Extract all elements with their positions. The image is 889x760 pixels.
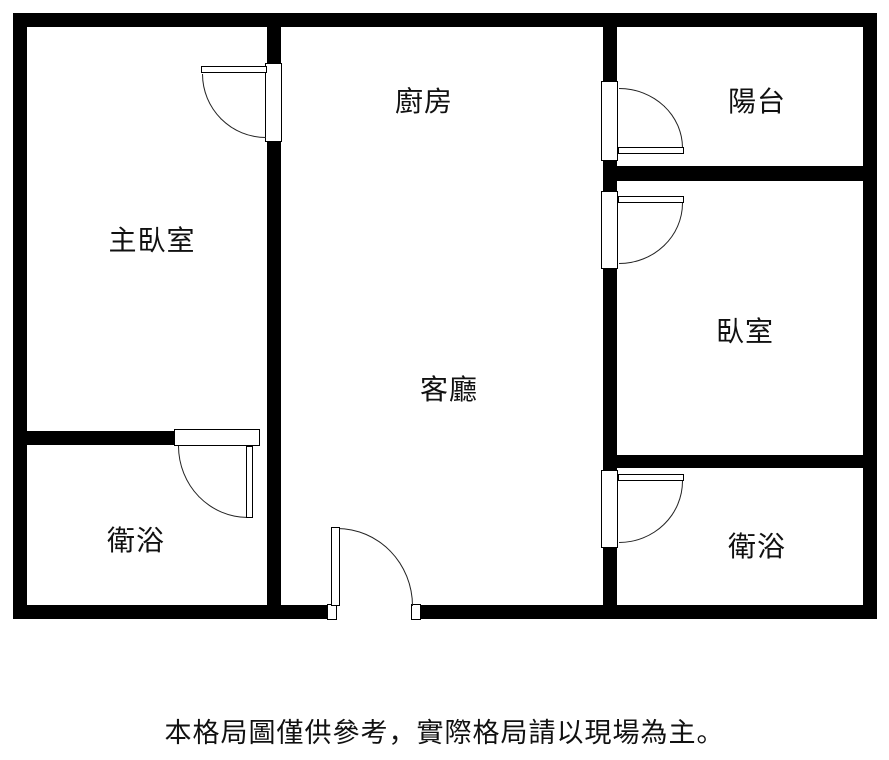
bathroom-right-door-frame <box>601 470 618 548</box>
room-label-bedroom: 臥室 <box>716 310 774 350</box>
room-label-balcony: 陽台 <box>728 80 786 120</box>
room-label-bathroom-right: 衛浴 <box>728 525 786 565</box>
disclaimer-text: 本格局圖僅供參考，實際格局請以現場為主。 <box>0 711 889 750</box>
outer-wall-bottom-right <box>420 605 877 619</box>
outer-wall-bottom-left <box>13 605 328 619</box>
outer-wall-top <box>13 13 877 27</box>
entrance-door-panel <box>331 527 340 606</box>
wall-right-column-seg4 <box>603 546 617 605</box>
room-label-living-room: 客廳 <box>420 368 478 408</box>
bedroom-door-swing-arc <box>619 203 683 264</box>
bathroom-right-door-panel <box>618 474 684 481</box>
wall-balcony-bottom <box>603 166 863 181</box>
wall-master-right-lower <box>267 140 281 605</box>
room-label-kitchen: 廚房 <box>395 80 453 120</box>
room-label-master-bedroom: 主臥室 <box>108 219 195 259</box>
bathroom-left-door-panel <box>246 446 253 518</box>
master-bedroom-door-frame <box>265 63 282 142</box>
balcony-door-swing-arc <box>619 88 683 148</box>
floor-plan: 主臥室 廚房 陽台 臥室 客廳 衛浴 衛浴 本格局圖僅供參考，實際格局請以現場為… <box>0 0 889 760</box>
wall-bathroom-left-top <box>13 431 177 445</box>
balcony-door-panel <box>618 147 684 154</box>
outer-wall-left <box>13 13 27 619</box>
bathroom-left-door-swing-arc <box>178 446 248 518</box>
wall-bedroom-bottom <box>603 455 863 468</box>
wall-right-column-seg3 <box>603 266 617 471</box>
room-label-bathroom-left: 衛浴 <box>107 519 165 559</box>
entrance-door-jamb-left <box>327 604 337 620</box>
master-bedroom-door-swing-arc <box>202 74 266 138</box>
entrance-door-jamb-right <box>411 604 421 620</box>
outer-wall-right <box>863 13 877 619</box>
entrance-door-swing-arc <box>337 528 413 606</box>
bedroom-door-frame <box>601 191 618 269</box>
wall-right-column-seg1 <box>603 27 617 83</box>
bathroom-right-door-swing-arc <box>619 481 683 543</box>
bedroom-door-panel <box>618 196 684 203</box>
wall-master-right-upper <box>267 27 281 65</box>
bathroom-left-door-frame <box>174 429 260 446</box>
balcony-door-frame <box>601 81 618 161</box>
master-bedroom-door-panel <box>201 66 267 73</box>
